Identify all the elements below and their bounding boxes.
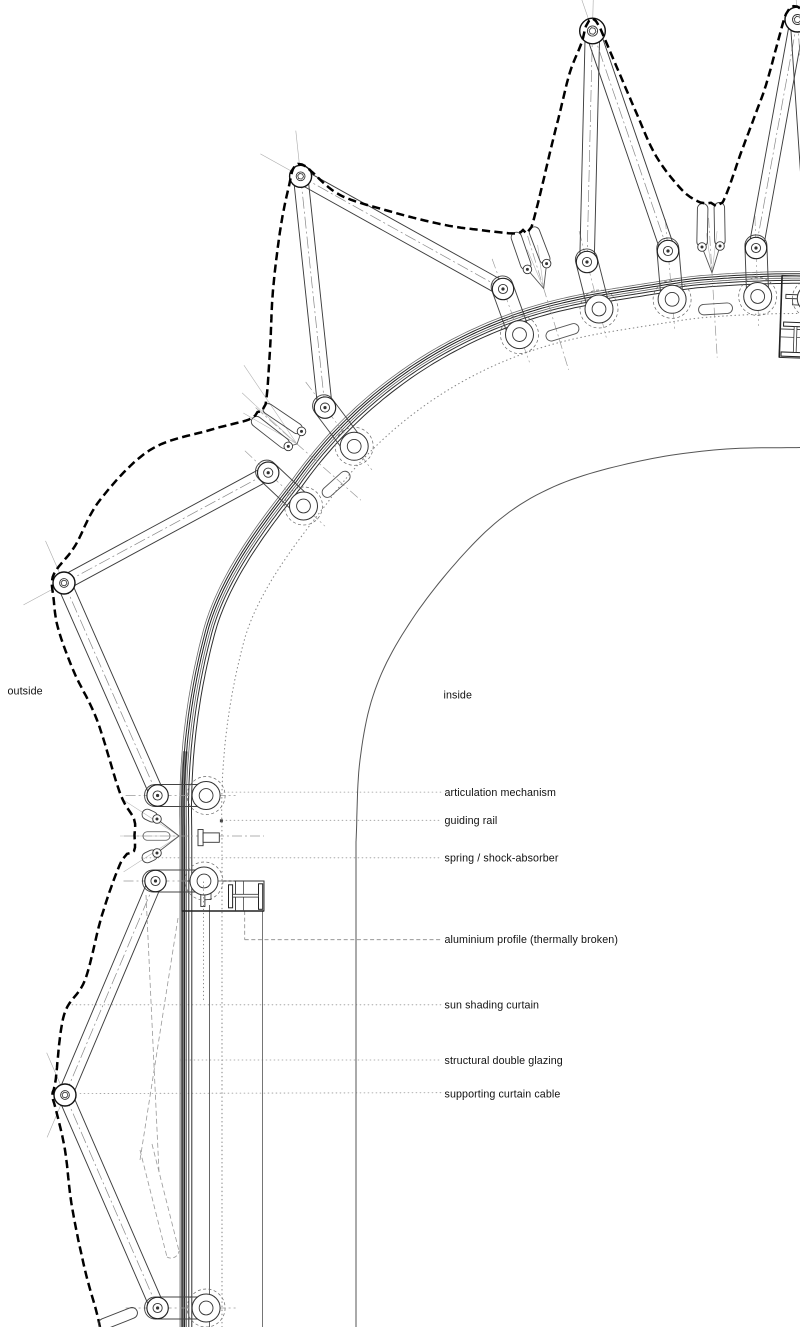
svg-text:sun shading curtain: sun shading curtain [445, 1000, 540, 1012]
svg-text:spring / shock-absorber: spring / shock-absorber [445, 853, 559, 865]
svg-text:supporting curtain cable: supporting curtain cable [445, 1088, 561, 1100]
svg-text:guiding rail: guiding rail [445, 815, 498, 827]
svg-text:outside: outside [8, 686, 43, 698]
svg-text:inside: inside [444, 690, 473, 702]
svg-text:structural double glazing: structural double glazing [445, 1055, 563, 1067]
svg-text:articulation mechanism: articulation mechanism [445, 787, 557, 799]
svg-text:aluminium profile (thermally b: aluminium profile (thermally broken) [445, 934, 618, 946]
